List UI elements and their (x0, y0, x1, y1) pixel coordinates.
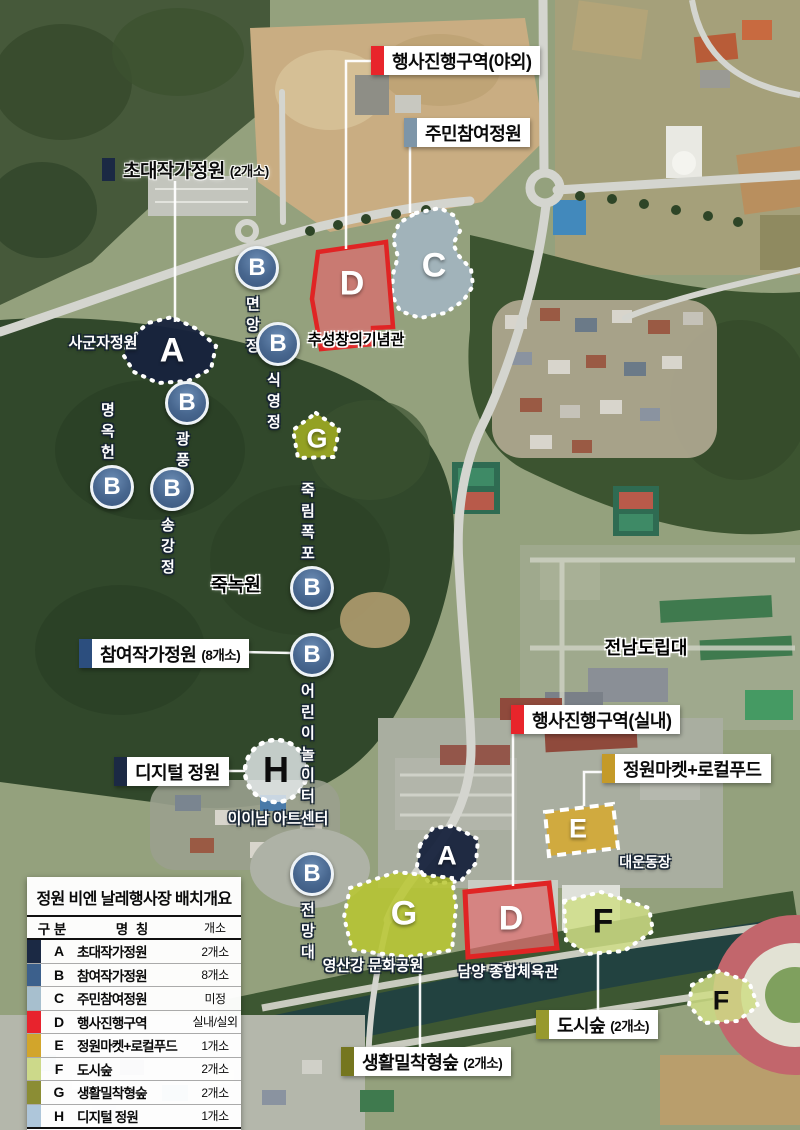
place-damyang-gym: 담양 종합체육관 (458, 961, 559, 982)
place-chuseong-hall: 추성창의기념관 (308, 329, 405, 350)
callout-count: (2개소) (463, 1052, 502, 1072)
legend-col-count: 개소 (189, 919, 241, 936)
legend-color-chip (27, 1058, 41, 1081)
marker-myeonangjeong: B 면앙정 (235, 246, 279, 290)
callout-count: (2개소) (610, 1015, 649, 1035)
callout-invited-garden: 초대작가정원 (2개소) (102, 155, 278, 184)
callout-indoor-event-zone: 행사진행구역(실내) (511, 705, 680, 734)
legend-color-chip (27, 1081, 41, 1104)
marker-label: 어린이놀이터 (301, 680, 323, 806)
marker-jungnim-falls: B 죽림폭포 (290, 566, 334, 610)
zone-letter-c-top: C (422, 247, 447, 286)
legend-col-division: 구 분 (27, 918, 77, 938)
marker-observatory: B 전망대 (290, 852, 334, 896)
callout-count: (2개소) (230, 160, 269, 180)
color-bar (404, 118, 417, 147)
marker-label: 죽림폭포 (301, 479, 323, 563)
callout-text: 디지털 정원 (135, 759, 220, 785)
callout-text: 행사진행구역(야외) (392, 48, 531, 74)
place-juknokwon: 죽녹원 (211, 571, 261, 597)
legend-col-name: 명 칭 (77, 918, 189, 938)
zone-letter-g-top: G (306, 424, 327, 455)
color-bar (341, 1047, 354, 1076)
callout-text: 초대작가정원 (123, 156, 225, 183)
marker-letter: B (290, 852, 334, 896)
color-bar (602, 754, 615, 783)
marker-label: 식영정 (267, 369, 289, 432)
callout-resident-garden: 주민참여정원 (404, 118, 530, 147)
color-bar (102, 158, 115, 181)
zone-letter-f-river: F (713, 986, 730, 1017)
legend-color-chip (27, 964, 41, 987)
place-sagunja-garden: 사군자정원 (68, 332, 137, 353)
legend-row-g: G 생활밀착형숲 2개소 (27, 1081, 241, 1105)
legend-row-d: D 행사진행구역 실내/실외 (27, 1011, 241, 1035)
callout-text: 생활밀착형숲 (362, 1049, 458, 1075)
legend-color-chip (27, 1011, 41, 1034)
marker-letter: B (90, 465, 134, 509)
place-main-field: 대운동장 (619, 852, 671, 872)
legend-row-a: A 초대작가정원 2개소 (27, 940, 241, 964)
callout-text: 참여작가정원 (100, 641, 196, 667)
color-bar (536, 1010, 549, 1039)
callout-outdoor-event-zone: 행사진행구역(야외) (371, 46, 540, 75)
callout-text: 도시숲 (557, 1012, 605, 1038)
marker-playground: B 어린이놀이터 (290, 633, 334, 677)
marker-letter: B (290, 633, 334, 677)
color-bar (371, 46, 384, 75)
legend-color-chip (27, 987, 41, 1010)
marker-letter: B (256, 322, 300, 366)
callout-garden-market: 정원마켓+로컬푸드 (602, 754, 771, 783)
marker-sigyeongjeong: B 식영정 (256, 322, 300, 366)
legend-title: 정원 비엔 날레행사장 배치개요 (27, 877, 241, 917)
color-bar (79, 639, 92, 668)
marker-label: 송강정 (161, 514, 183, 577)
place-artcenter: 이이남 아트센터 (228, 808, 329, 829)
marker-myeongokheon: B 명옥헌 (90, 465, 134, 509)
callout-life-forest: 생활밀착형숲 (2개소) (341, 1047, 511, 1076)
callout-text: 주민참여정원 (425, 120, 521, 146)
legend-row-h: H 디지털 정원 1개소 (27, 1105, 241, 1130)
callout-participating-garden: 참여작가정원 (8개소) (79, 639, 249, 668)
zone-letter-e: E (569, 814, 587, 845)
color-bar (114, 757, 127, 786)
zone-letter-d-top: D (340, 265, 365, 304)
marker-gwangpunggak: B 광풍각 (165, 381, 209, 425)
color-bar (511, 705, 524, 734)
satellite-site-plan: A C D G H A G D F E F B 면앙정 B 식영정 B 광풍각 … (0, 0, 800, 1130)
marker-letter: B (235, 246, 279, 290)
zone-letter-f-mid: F (593, 903, 614, 942)
callout-count: (8개소) (201, 644, 240, 664)
marker-letter: B (165, 381, 209, 425)
place-jeonnam-college: 전남도립대 (605, 634, 688, 660)
zone-letter-d-bottom: D (499, 900, 524, 939)
legend-row-f: F 도시숲 2개소 (27, 1058, 241, 1082)
marker-letter: B (290, 566, 334, 610)
marker-letter: B (150, 467, 194, 511)
legend-color-chip (27, 940, 41, 963)
zone-letter-h: H (263, 749, 289, 791)
marker-label: 명옥헌 (101, 399, 123, 462)
legend-table: 정원 비엔 날레행사장 배치개요 구 분 명 칭 개소 A 초대작가정원 2개소… (27, 877, 241, 1130)
callout-text: 행사진행구역(실내) (532, 707, 671, 733)
callout-city-forest: 도시숲 (2개소) (536, 1010, 658, 1039)
marker-label: 전망대 (301, 899, 323, 962)
legend-color-chip (27, 1034, 41, 1057)
legend-color-chip (27, 1105, 41, 1128)
zone-letter-g-bottom: G (391, 895, 417, 934)
zone-letter-a-bottom: A (437, 841, 457, 872)
callout-text: 정원마켓+로컬푸드 (623, 756, 762, 782)
legend-row-e: E 정원마켓+로컬푸드 1개소 (27, 1034, 241, 1058)
legend-row-b: B 참여작가정원 8개소 (27, 964, 241, 988)
marker-songgangjeong: B 송강정 (150, 467, 194, 511)
zone-letter-a-top: A (160, 332, 185, 371)
place-yeongsan-park: 영산강 문화공원 (323, 955, 424, 976)
legend-row-c: C 주민참여정원 미정 (27, 987, 241, 1011)
legend-header: 구 분 명 칭 개소 (27, 917, 241, 940)
callout-digital-garden: 디지털 정원 (114, 757, 229, 786)
